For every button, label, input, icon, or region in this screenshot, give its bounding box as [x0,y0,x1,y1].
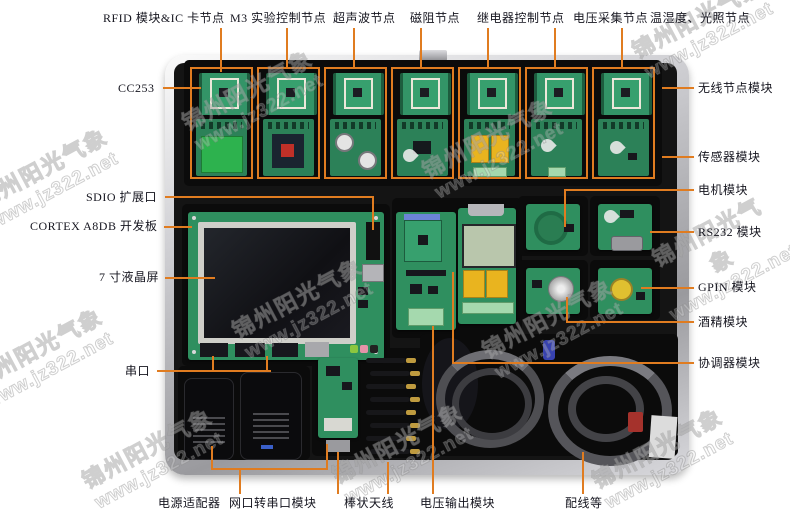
leader-magneto [420,28,422,68]
antenna-region [612,78,641,109]
leader-sensor [662,156,694,158]
leader-sdio-v [372,196,374,230]
label-7inch-lcd: 7 寸液晶屏 [99,270,159,285]
label-motor-module: 电机模块 [698,183,748,198]
label-rod-antenna: 棒状天线 [344,496,394,511]
db9-connector [611,236,643,251]
rod-antenna [370,397,410,402]
label-rfid-ic-card-node: RFID 模块&IC 卡节点 [103,11,225,26]
coordinator-module [396,212,456,330]
leader-adapter-t2 [326,444,328,470]
usb-connector [305,342,329,357]
db9-connector [468,204,504,216]
silkscreen-logo [601,207,619,225]
leader-alcohol-h [567,321,694,323]
leader-antenna [387,462,389,494]
button [358,287,368,295]
node-module-voltage [525,67,588,179]
node-module-relay [458,67,521,179]
terminal-strip [462,302,514,314]
watermark: 锦州阳光气象www.jz322.net [0,119,123,234]
wireless-board [400,73,451,115]
watermark-url: www.jz322.net [0,328,118,415]
audio-jack-green [350,345,358,353]
rod-antenna [370,371,410,376]
leader-gpin [641,287,694,289]
alcohol-sensor-cylinder [548,276,574,302]
antenna-sma-tip [410,449,420,454]
pin-header [406,270,446,276]
terminal-block [473,167,507,177]
antenna-sma-tip [410,371,420,376]
label-voltage-output-module: 电压输出模块 [420,496,495,511]
label-sdio-port: SDIO 扩展口 [86,190,157,205]
label-sensor-module: 传感器模块 [698,150,761,165]
screw [374,216,378,220]
sensor-board [531,119,582,176]
wireless-board [404,220,442,262]
sensor-board [196,119,247,176]
serial-connector [200,343,228,357]
antenna-sma-tip [410,397,420,402]
watermark: 锦州阳光气象www.jz322.net [0,299,118,414]
rod-antenna [366,358,406,363]
label-voltage-acq-node: 电压采集节点 [573,11,648,26]
relay [463,270,485,298]
wireless-board [333,73,384,115]
relay [486,270,508,298]
leader-temp-light [621,28,623,68]
motor-coil [534,211,568,245]
antenna-sma-tip [406,384,416,389]
leader-adapter-t1 [211,446,213,470]
gpin-module [598,268,652,314]
antenna-region [478,78,507,109]
label-relay-control-node: 继电器控制节点 [477,11,565,26]
audio-jack-black [370,345,378,353]
label-magneto-node: 磁阻节点 [410,11,460,26]
chip [418,235,428,245]
label-cc253: CC253 [118,81,155,96]
node-module-magneto [391,67,454,179]
leader-adapter-down [239,468,241,494]
label-gpin-module: GPIN 模块 [698,280,757,295]
rs232-module [598,204,652,250]
leader-m3 [286,28,288,68]
adapter-label [253,413,289,441]
wireless-board [467,73,518,115]
leader-coordinator-v [452,272,454,364]
leader-alcohol-v [566,297,568,323]
watermark-text: 锦州阳光气象 [0,299,108,395]
sensor-board [464,119,515,176]
antenna-region [344,78,373,109]
leader-serial-t1 [212,356,214,372]
leader-rfid [220,28,222,72]
leader-adapter-h [211,468,328,470]
wireless-board [534,73,585,115]
chip [620,210,634,218]
foam-recess-antennas [360,348,424,458]
yellow-component [610,278,633,301]
component [410,284,422,294]
label-temp-light-node: 温湿度、光照节点 [650,11,750,26]
module-connector [326,440,350,452]
screw [192,350,196,354]
silkscreen-logo [607,138,625,156]
rfid-antenna-pad [201,136,243,173]
label-wireless-node-module: 无线节点模块 [698,81,773,96]
component [342,382,352,390]
label-eth-serial-module: 网口转串口模块 [229,496,317,511]
sensor-chip [628,153,637,160]
voltage-output-module [458,208,516,324]
component [428,286,438,294]
node-module-temp-light [592,67,655,179]
antenna-sma-tip [406,410,416,415]
wireless-board [601,73,652,115]
terminal-block [548,167,566,177]
leader-coordinator-h [453,362,694,364]
adapter-label [193,417,225,445]
leader-relay [487,28,489,68]
leader-serial-h [157,370,271,372]
rod-antenna [370,449,410,454]
chip [326,366,340,376]
screw [192,216,196,220]
leader-ultrasonic [353,28,355,68]
label-power-adapter: 电源适配器 [158,496,221,511]
leader-voltage-acq [554,28,556,68]
antenna-region [210,78,239,109]
leader-motor-h [565,189,694,191]
label-m3-control-node: M3 实验控制节点 [230,11,326,26]
power-adapter [240,372,302,460]
label-wiring-etc: 配线等 [565,496,603,511]
connector [272,343,298,357]
leader-rs232 [650,231,694,233]
antenna-region [411,78,440,109]
sensor-board [397,119,448,176]
sensor-board [598,119,649,176]
motor-module [526,204,580,250]
ultrasonic-transducers [330,131,381,173]
label-rs232-module: RS232 模块 [698,225,762,240]
leader-sdio-h [165,196,374,198]
terminal-block [408,308,444,326]
m3-controller-chip [272,134,304,168]
antenna-sma-tip [406,436,416,441]
leader-wiring [582,452,584,494]
leader-serial-t2 [266,356,268,372]
serial-connector [235,343,265,357]
component [636,292,645,300]
ethernet-serial-module [318,358,358,438]
alcohol-module [526,268,580,314]
antenna-region [545,78,574,109]
red-item [628,412,643,432]
silkscreen-logo [538,136,556,154]
ethernet-jack [362,264,384,282]
label-serial-port: 串口 [125,364,150,379]
sensor-board [330,119,381,176]
coiled-cable [452,368,532,440]
leader-wireless [662,87,694,89]
audio-jack-pink [360,345,368,353]
antenna-sma-tip [406,358,416,363]
white-paper [649,415,678,459]
rod-antenna [366,436,406,441]
annotated-product-photo: RFID 模块&IC 卡节点 M3 实验控制节点 超声波节点 磁阻节点 继电器控… [0,0,790,527]
leader-eth-serial [337,452,339,494]
label-ultrasonic-node: 超声波节点 [333,11,396,26]
label-coordinator-module: 协调器模块 [698,356,761,371]
lcd-screen-7inch [204,228,350,338]
component [532,280,542,288]
node-module-ultrasonic [324,67,387,179]
node-module-rfid [190,67,253,179]
leader-motor-v [564,189,566,227]
wireless-board [199,73,250,115]
blue-connector [543,340,555,360]
coiled-cable [568,376,644,442]
sensor-board [263,119,314,176]
power-adapter [184,378,234,460]
antenna-region [277,78,306,109]
button [358,300,368,308]
node-module-m3 [257,67,320,179]
leader-voltage-out [432,326,434,494]
white-label [324,418,352,431]
label-alcohol-module: 酒精模块 [698,315,748,330]
antenna-sma-tip [410,423,420,428]
rod-antenna [370,423,410,428]
leader-lcd [165,277,215,279]
rod-antenna [366,384,406,389]
label-cortex-devboard: CORTEX A8DB 开发板 [30,219,157,234]
rod-antenna [366,410,406,415]
wireless-board [266,73,317,115]
lcd-display [462,224,516,268]
blue-sticker [261,445,273,449]
leader-cortex [164,226,192,228]
leader-cc253 [163,87,201,89]
